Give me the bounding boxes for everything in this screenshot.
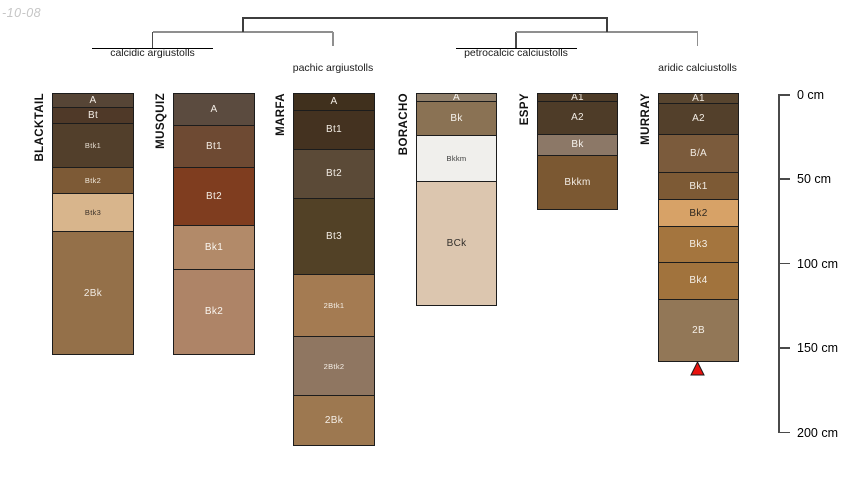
horizon-label: A [453,94,460,102]
horizon-label: Bk3 [689,239,707,250]
horizon-label: Btk3 [85,208,101,217]
dendrogram-drop-pachic [332,32,334,47]
horizon-marfa-a: A [294,94,374,111]
profile-column-marfa: ABt1Bt2Bt32Btk12Btk22Bk [293,93,375,446]
horizon-espy-bk: Bk [538,135,617,157]
watermark-date: -10-08 [2,6,41,20]
horizon-blacktail-bt: Bt [53,108,133,125]
horizon-marfa-2btk1: 2Btk1 [294,275,374,337]
horizon-label: A2 [571,112,584,123]
profile-column-boracho: ABkBkkmBCk [416,93,497,306]
clade-label-petrocalcic: petrocalcic calciustolls [464,47,568,59]
series-label-musquiz: MUSQUIZ [155,93,169,173]
horizon-label: Bk1 [205,242,223,253]
dendrogram-root-line [243,17,607,19]
horizon-espy-bkkm: Bkkm [538,156,617,208]
horizon-label: Bk [571,139,583,150]
depth-tick-label: 100 cm [797,257,838,271]
horizon-label: Bk1 [689,181,707,192]
horizon-boracho-bck: BCk [417,182,496,305]
series-label-marfa: MARFA [275,93,289,173]
horizon-espy-a2: A2 [538,102,617,134]
horizon-murray-bk4: Bk4 [659,263,738,300]
series-label-blacktail: BLACKTAIL [34,93,48,173]
horizon-murray-b-a: B/A [659,135,738,174]
depth-tick-label: 200 cm [797,426,838,440]
horizon-murray-a1: A1 [659,94,738,104]
horizon-boracho-a: A [417,94,496,102]
horizon-label: Bt2 [326,168,342,179]
horizon-label: Bk2 [205,306,223,317]
horizon-label: A2 [692,113,705,124]
horizon-label: 2Bk [325,415,343,426]
horizon-murray-2b: 2B [659,300,738,361]
horizon-blacktail-a: A [53,94,133,108]
depth-scale-tick [778,263,790,265]
horizon-musquiz-bt2: Bt2 [174,168,254,225]
horizon-murray-bk2: Bk2 [659,200,738,227]
depth-scale-tick [778,347,790,349]
horizon-label: A1 [692,94,705,104]
dendrogram-drop-aridic [697,32,699,47]
depth-tick-label: 50 cm [797,172,831,186]
horizon-label: Bkkm [447,154,467,163]
dendrogram-drop-calcidic [152,32,154,49]
horizon-musquiz-bk1: Bk1 [174,226,254,270]
profile-column-murray: A1A2B/ABk1Bk2Bk3Bk42B [658,93,739,362]
horizon-label: Bk4 [689,275,707,286]
horizon-murray-a2: A2 [659,104,738,134]
horizon-label: Bt1 [326,124,342,135]
horizon-boracho-bk: Bk [417,102,496,136]
horizon-blacktail-btk1: Btk1 [53,124,133,168]
horizon-blacktail-btk2: Btk2 [53,168,133,193]
horizon-marfa-bt2: Bt2 [294,150,374,199]
profile-column-musquiz: ABt1Bt2Bk1Bk2 [173,93,255,355]
horizon-label: Bt1 [206,141,222,152]
horizon-label: BCk [447,238,467,249]
horizon-marfa-2bk: 2Bk [294,396,374,445]
horizon-boracho-bkkm: Bkkm [417,136,496,182]
horizon-label: Bt2 [206,191,222,202]
horizon-musquiz-a: A [174,94,254,126]
horizon-blacktail-btk3: Btk3 [53,194,133,233]
horizon-blacktail-2bk: 2Bk [53,232,133,354]
profile-column-blacktail: ABtBtk1Btk2Btk32Bk [52,93,134,355]
horizon-label: A [331,96,338,107]
horizon-label: Btk2 [85,176,101,185]
depth-scale-tick [778,432,790,434]
horizon-murray-bk1: Bk1 [659,173,738,200]
depth-tick-label: 150 cm [797,341,838,355]
series-label-boracho: BORACHO [398,93,412,173]
horizon-label: 2Btk1 [324,301,345,310]
horizon-label: Bkkm [564,177,590,188]
horizon-marfa-bt1: Bt1 [294,111,374,150]
horizon-label: Bk2 [689,208,707,219]
depth-scale-tick [778,94,790,96]
horizon-label: Bt [88,110,98,121]
horizon-label: B/A [690,148,707,159]
clade-label-pachic: pachic argiustolls [293,62,374,74]
horizon-label: 2B [692,325,705,336]
series-label-murray: MURRAY [640,93,654,173]
horizon-label: Btk1 [85,141,101,150]
dendrogram-branch-drop-0 [242,17,244,32]
horizon-marfa-bt3: Bt3 [294,199,374,275]
horizon-label: A1 [571,94,584,102]
horizon-label: 2Bk [84,288,102,299]
horizon-label: A [90,95,97,106]
horizon-label: A [211,104,218,115]
clade-label-aridic: aridic calciustolls [658,62,737,74]
horizon-label: 2Btk2 [324,362,345,371]
clade-label-calcidic: calcidic argiustolls [110,47,195,59]
horizon-label: Bt3 [326,231,342,242]
depth-tick-label: 0 cm [797,88,824,102]
red-triangle-marker [690,361,705,376]
horizon-musquiz-bk2: Bk2 [174,270,254,354]
profile-column-espy: A1A2BkBkkm [537,93,618,210]
horizon-label: Bk [450,113,462,124]
horizon-murray-bk3: Bk3 [659,227,738,262]
horizon-marfa-2btk2: 2Btk2 [294,337,374,396]
soil-profile-figure: -10-08 calcidic argiustollspachic argius… [0,0,850,500]
horizon-espy-a1: A1 [538,94,617,102]
depth-scale-tick [778,178,790,180]
dendrogram-branch-drop-1 [606,17,608,32]
series-label-espy: ESPY [519,93,533,173]
horizon-musquiz-bt1: Bt1 [174,126,254,168]
